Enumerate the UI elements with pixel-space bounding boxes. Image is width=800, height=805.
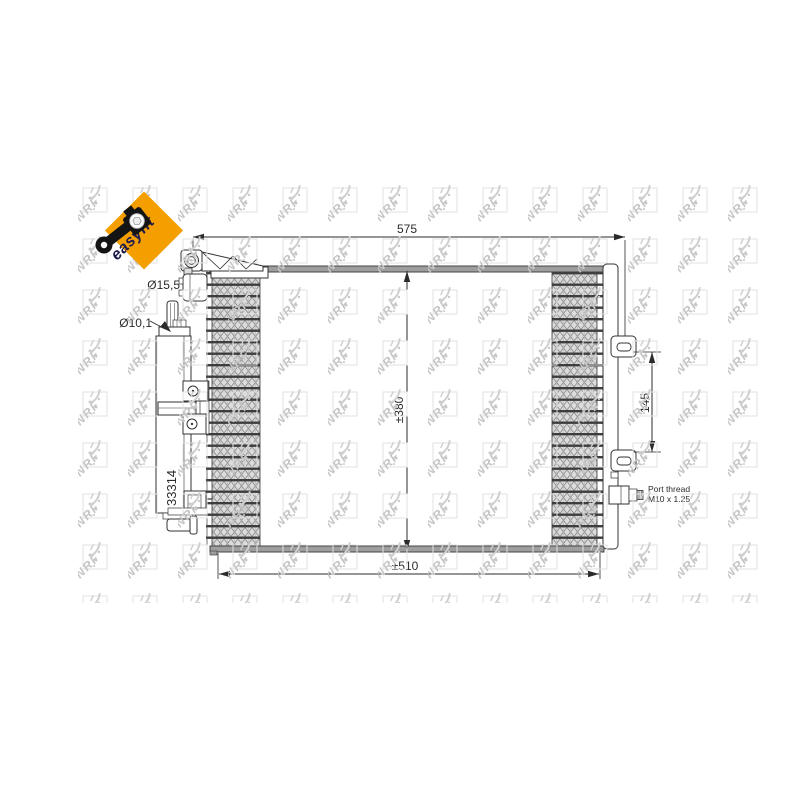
condenser-technical-drawing: NRF bbox=[0, 0, 800, 800]
